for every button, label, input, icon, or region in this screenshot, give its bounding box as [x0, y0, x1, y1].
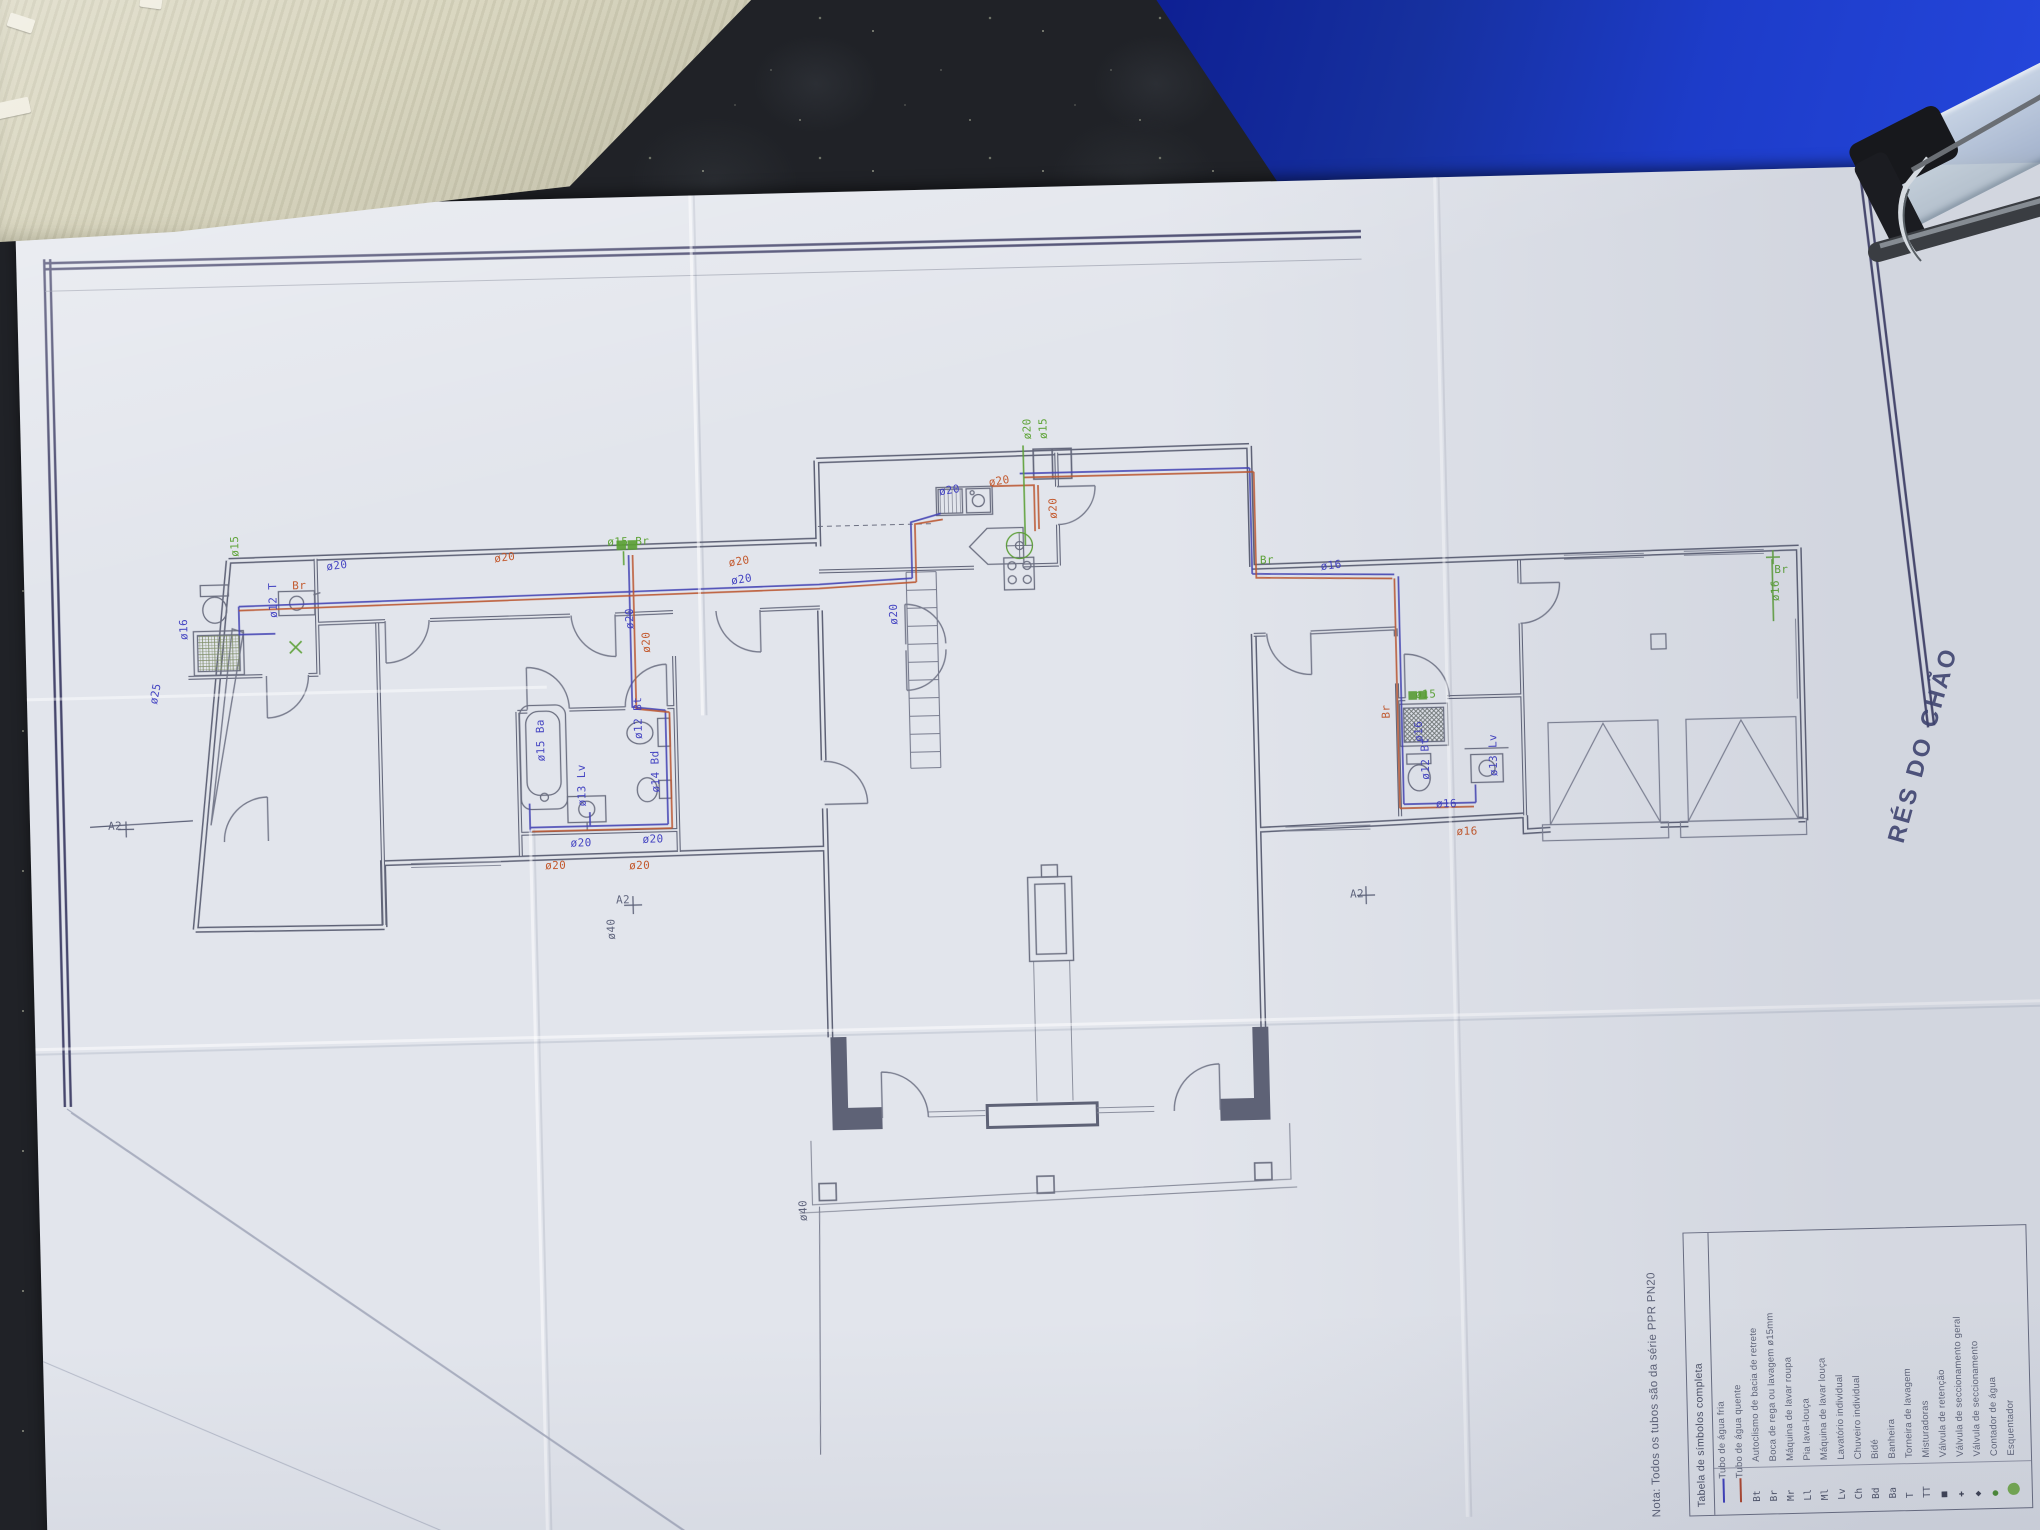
stove — [1004, 557, 1035, 590]
legend-desc: Válvula de seccionamento — [1969, 1341, 1983, 1457]
legend-symbol — [1739, 1478, 1742, 1502]
kitchen-sink — [817, 486, 993, 526]
legend-symbol: ✚ — [1955, 1457, 1967, 1509]
legend-symbol: Ll — [1802, 1460, 1814, 1512]
porch-piers — [830, 1027, 1270, 1132]
garage-doors — [1538, 630, 1807, 840]
legend-symbol: ⬤ — [2004, 1455, 2019, 1507]
legend-desc: Misturadoras — [1920, 1400, 1932, 1458]
legend-symbol — [1722, 1479, 1725, 1503]
legend-desc: Torneira de lavagem — [1902, 1368, 1915, 1458]
legend-symbol: Mr — [1785, 1461, 1797, 1513]
legend-desc: Boca de rega ou lavagem ø15mm — [1764, 1312, 1779, 1461]
legend-desc: Esquentador — [2005, 1399, 2017, 1455]
wc-shower — [193, 631, 244, 676]
stairs — [906, 572, 941, 769]
hot-water-pipes — [236, 467, 1474, 839]
legend-desc: Contador de água — [1987, 1377, 2000, 1457]
legend-symbol: T — [1904, 1458, 1916, 1510]
legend-desc: Autoclismo de bacia de retrete — [1748, 1327, 1762, 1462]
legend-desc: Válvula de seccionamento geral — [1952, 1316, 1966, 1457]
legend-symbol: TT — [1921, 1458, 1933, 1510]
legend-symbol: Ml — [1819, 1460, 1831, 1512]
fireplace — [1027, 864, 1077, 1101]
legend-symbol: ● — [1989, 1456, 2001, 1508]
legend-table: Tabela de símbolos completa Tubo de água… — [1682, 1224, 2033, 1516]
legend-symbol: Bd — [1870, 1459, 1882, 1511]
legend-desc: Válvula de retenção — [1936, 1369, 1949, 1457]
legend-rows: Tubo de água fria Tubo de água quente Bt… — [1708, 1225, 2021, 1514]
legend-symbol: Ch — [1853, 1459, 1865, 1511]
cardboard-tear — [0, 97, 31, 120]
legend-desc: Banheira — [1886, 1419, 1898, 1459]
legend-symbol: ■ — [1938, 1457, 1950, 1509]
legend-symbol: ◆ — [1972, 1456, 1984, 1508]
legend-desc: Chuveiro individual — [1851, 1375, 1864, 1459]
frame-border — [43, 175, 1942, 1107]
blueprint-paper: ø16ø25ø15ø12 TBrø20ø20ø20ø20ø15 Brø20ø20… — [15, 161, 2040, 1530]
legend-desc: Máquina de lavar louça — [1817, 1357, 1831, 1460]
legend-symbol: Ba — [1887, 1458, 1899, 1510]
legend-desc: Máquina de lavar roupa — [1783, 1357, 1797, 1461]
cardboard-tear — [6, 12, 35, 33]
legend-symbol: Lv — [1836, 1460, 1848, 1512]
right-basin — [1465, 748, 1510, 783]
bath-toilet — [627, 718, 671, 747]
legend-desc: Lavatório individual — [1834, 1374, 1847, 1460]
legend-desc: Bidé — [1870, 1439, 1881, 1459]
partition-walls — [183, 437, 1527, 929]
water-heater — [969, 527, 1033, 565]
cardboard-tear — [139, 0, 162, 9]
bathtub — [519, 705, 568, 810]
cold-water-pipes — [236, 463, 1476, 839]
outer-walls — [184, 433, 1810, 1053]
doors — [203, 474, 1572, 1134]
fixtures — [190, 474, 1510, 840]
terrace — [90, 791, 1388, 1472]
right-shower — [1399, 703, 1448, 746]
photo-scene: ø16ø25ø15ø12 TBrø20ø20ø20ø20ø15 Brø20ø20… — [0, 0, 2040, 1530]
legend-desc: Tubo de água fria — [1716, 1401, 1729, 1479]
legend-desc: Tubo de água quente — [1732, 1384, 1745, 1478]
legend-desc: Pia lava-louça — [1801, 1398, 1814, 1461]
legend-symbol: Br — [1768, 1461, 1780, 1513]
right-toilet — [1407, 754, 1432, 792]
legend-symbol: Bt — [1751, 1462, 1763, 1514]
